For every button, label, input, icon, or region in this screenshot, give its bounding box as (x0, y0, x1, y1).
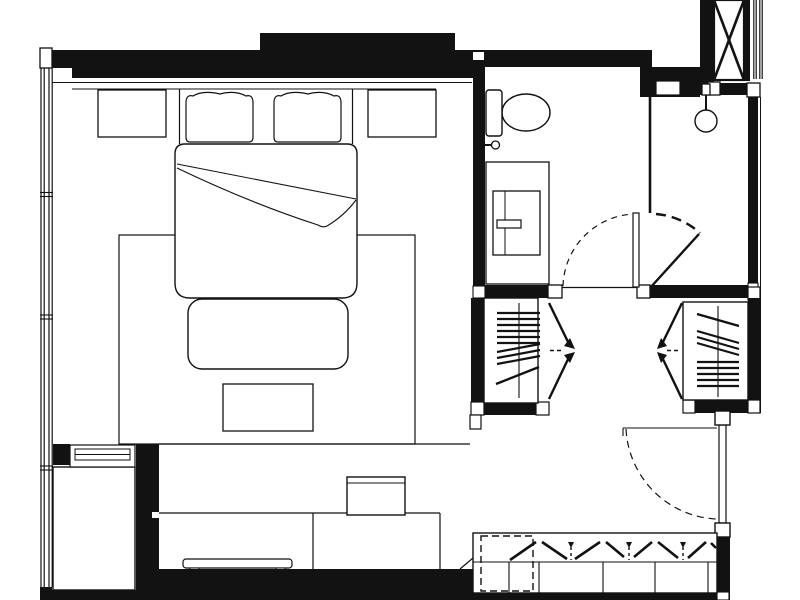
corner-bevel-line (460, 558, 473, 569)
jamb-bath-mid (548, 285, 562, 298)
toilet-tank (486, 90, 502, 136)
entry-door-swing-arc (626, 429, 716, 519)
shaft-bottom-wall (720, 83, 747, 95)
wardrobe-right-door-top (661, 303, 682, 346)
shoe-cabinet-base-band (473, 593, 717, 600)
coffee-table (223, 384, 313, 431)
wardrobe-right-door-bottom (661, 355, 682, 399)
nightstand-left (98, 90, 166, 137)
desk-side-block (53, 444, 70, 465)
wardrobe-right-jamb-b (748, 400, 760, 413)
entry-door-leaf (719, 425, 726, 523)
bathroom-door-leaf (633, 213, 639, 287)
shower-door-swing-arc (656, 214, 700, 233)
entry-jamb-top (715, 411, 730, 425)
wardrobe-right-jamb-a (683, 400, 695, 413)
shower-arm-mount (702, 84, 710, 95)
wardrobe-left-door-top (549, 303, 570, 346)
media-shelf (183, 559, 292, 568)
shower-head (695, 110, 717, 132)
wardrobe-right-wall (748, 298, 760, 401)
pillow-right (274, 92, 341, 142)
wall-top-band-thin (52, 50, 72, 68)
wardrobe-left-door-bottom (549, 355, 570, 399)
floor-plan-canvas (0, 0, 800, 600)
shower-niche (656, 81, 680, 95)
toilet-roll-holder (492, 141, 500, 149)
wardrobe-left-wall (471, 298, 484, 404)
nightstand-right (368, 90, 436, 137)
shaft-left-wall (700, 0, 714, 95)
side-cabinet-outer (70, 445, 135, 467)
shower-door-leaf (650, 234, 699, 288)
pillow-left (186, 92, 253, 142)
entry-wall-bar (717, 537, 730, 600)
bathroom-south-wall-right (650, 285, 748, 298)
wardrobe-left-jamb-a (471, 402, 484, 415)
entry-corner-square (717, 592, 729, 600)
wardrobe-left-jamb-c (470, 415, 481, 429)
bathroom-west-wall (473, 60, 485, 288)
wall-top-band-main (72, 50, 473, 78)
jamb-shaft-right (747, 83, 760, 97)
shower-top-wall-block (640, 65, 652, 97)
wardrobe-left-jamb-b (536, 402, 549, 415)
wardrobe-right-door-arrow-bottom (657, 352, 667, 363)
wardrobe-right-door-arrow-top (657, 338, 667, 349)
wall-top-band-right (473, 50, 652, 67)
wall-top-band-bump (260, 33, 455, 50)
toilet-bowl (502, 94, 550, 131)
floor-plan-svg (0, 0, 800, 600)
shaft-right-wall (744, 0, 750, 81)
bench-ottoman (188, 299, 348, 369)
jamb-bath-corner (473, 286, 485, 298)
south-wall-band (153, 569, 473, 600)
vanity-faucet (497, 220, 521, 228)
bathroom-door-swing-arc (563, 214, 636, 286)
window-foot-block (40, 587, 52, 600)
double-bed (175, 144, 357, 298)
desk (53, 467, 135, 590)
window-head-block (40, 48, 52, 68)
right-wall (748, 97, 758, 283)
west-partition-notch (152, 512, 159, 518)
